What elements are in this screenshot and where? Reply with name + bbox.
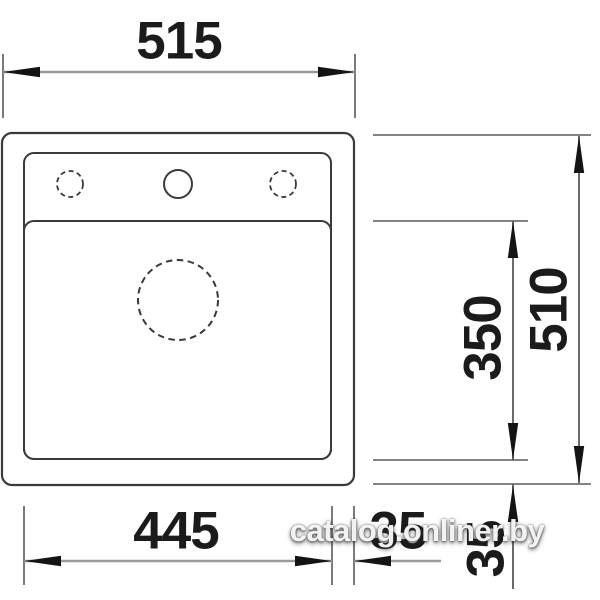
arrow-350-up	[508, 221, 518, 258]
arrow-350-down	[508, 423, 518, 460]
dim-label-bowl-width: 445	[133, 505, 218, 558]
sink-bowl-outline	[24, 221, 331, 459]
arrow-510-down	[574, 446, 584, 483]
tap-hole-left-circle	[57, 171, 83, 197]
tap-hole-right-circle	[270, 171, 296, 197]
arrow-445-right	[295, 556, 332, 566]
sink-body-group	[2, 133, 354, 485]
tap-hole-center-circle	[164, 170, 192, 198]
dim-label-overall-depth: 510	[523, 267, 576, 352]
dimension-lines-group	[3, 72, 441, 561]
dim-label-overall-width: 515	[136, 15, 221, 68]
dimension-drawing-canvas: 515 445 35 510 350 35 catalog.onliner.by	[0, 0, 600, 600]
drain-hole-circle	[138, 260, 218, 340]
arrow-510-up	[574, 136, 584, 173]
arrow-445-left	[24, 556, 61, 566]
watermark-text: catalog.onliner.by	[290, 513, 545, 549]
arrow-515-left	[3, 67, 40, 77]
sink-outer-rim-outline	[2, 133, 354, 485]
dim-label-bowl-depth: 350	[457, 295, 510, 380]
arrow-515-right	[318, 67, 355, 77]
